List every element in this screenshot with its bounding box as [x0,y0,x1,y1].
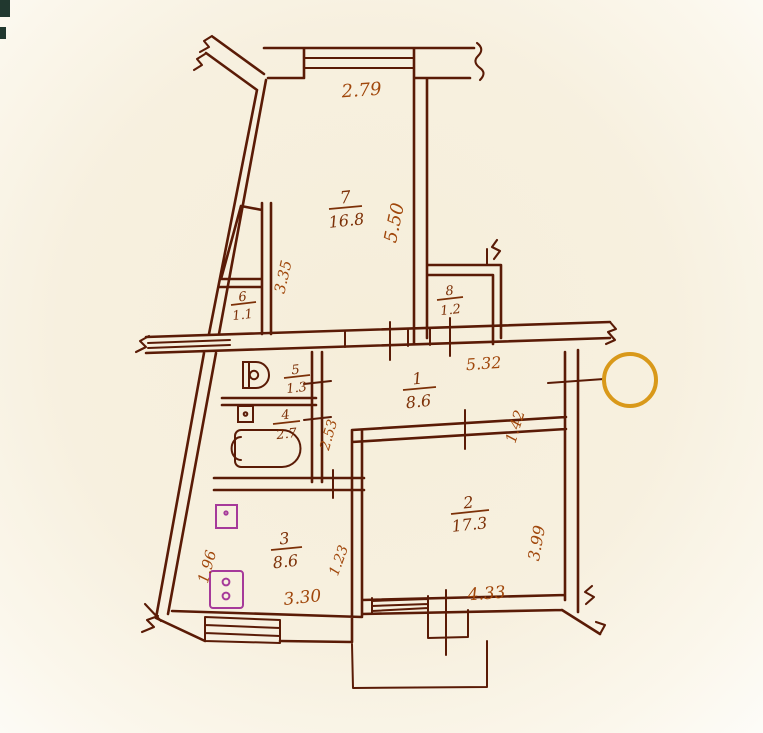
break-top-right-icon [475,43,483,80]
dim-corridor: 2.53 [317,418,341,453]
room-3-number: 3 [278,529,290,549]
scan-corner-mark [0,0,10,17]
room-8-number: 8 [445,284,455,300]
room-3-area: 8.6 [272,551,299,573]
kitchen-appliance-icon [216,505,237,528]
room-1-label: 1 8.6 [403,369,436,413]
floorplan-scan: 7 16.8 6 1.1 8 1.2 5 1.3 4 2.7 1 8.6 [0,0,763,733]
room-2-area: 17.3 [451,513,488,536]
room-3-label: 3 8.6 [271,529,302,573]
dim-hall-width: 5.32 [465,353,502,374]
break-entry-left-icon [136,336,149,352]
room-1-number: 1 [411,369,423,389]
room-4-number: 4 [280,408,291,424]
room-7-label: 7 16.8 [328,187,365,231]
room-7-area: 16.8 [328,209,365,232]
lower-block-walls [146,322,610,642]
room-2-label: 2 17.3 [451,493,489,536]
window-kitchen [205,617,280,643]
room-5-area: 1.3 [286,380,308,397]
break-top-left-icon [194,36,212,70]
dim-room7-right: 5.50 [380,201,409,245]
floorplan-drawing: 7 16.8 6 1.1 8 1.2 5 1.3 4 2.7 1 8.6 [0,0,763,733]
dim-kitchen-right: 1.23 [326,543,352,578]
room-4-label: 4 2.7 [273,408,300,444]
sink-icon [238,406,253,422]
survey-circle-marker [604,354,656,406]
dim-room2-right: 3.99 [524,524,549,562]
window-top [304,58,414,68]
dim-kitchen-left: 1.96 [194,548,220,585]
room-5-label: 5 1.3 [284,363,310,397]
break-room8-icon [492,240,500,259]
room-2-number: 2 [461,493,474,513]
dim-room7-left: 3.35 [271,259,296,296]
scan-edge-mark [0,27,6,39]
room-1-area: 8.6 [405,391,432,413]
room-8-label: 8 1.2 [437,284,463,319]
dim-room2-bottom: 4.33 [466,583,506,606]
room-8-area: 1.2 [440,302,462,319]
toilet-icon [243,362,269,388]
room-6-label: 6 1.1 [231,290,256,324]
room-4-area: 2.7 [275,426,299,443]
room-6-area: 1.1 [232,307,254,324]
dimension-labels: 2.79 5.50 3.35 5.32 1.42 2.53 1.96 1.23 … [194,79,549,610]
balcony-outline [352,641,487,688]
stove-icon [210,571,243,608]
room-7-number: 7 [339,187,352,208]
dim-kitchen-bottom: 3.30 [283,586,323,610]
entry-wall-hatch [148,340,230,348]
scan-artifacts [0,0,10,39]
dim-hall-right: 1.42 [502,408,529,445]
break-hall-right-icon [606,322,616,344]
dim-top-window: 2.79 [340,79,382,103]
balcony-door [428,610,468,638]
